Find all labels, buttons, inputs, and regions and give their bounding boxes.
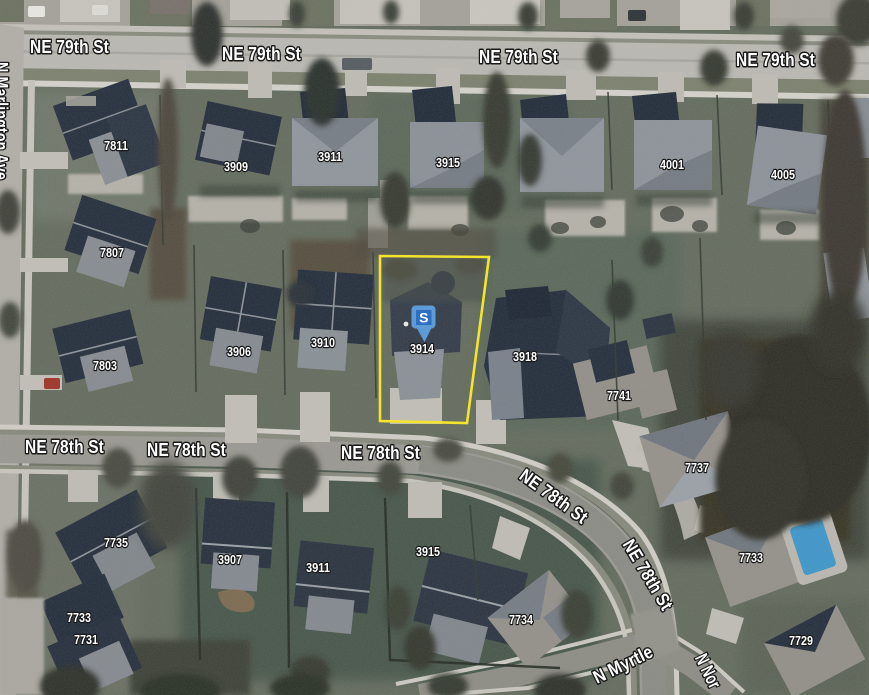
svg-text:3918: 3918 bbox=[513, 349, 537, 364]
svg-text:7735: 7735 bbox=[104, 535, 128, 550]
svg-text:NE 78th St: NE 78th St bbox=[25, 436, 104, 457]
svg-text:7731: 7731 bbox=[74, 632, 98, 647]
svg-text:7803: 7803 bbox=[93, 358, 117, 373]
svg-text:3911: 3911 bbox=[318, 149, 342, 164]
svg-text:7733: 7733 bbox=[67, 610, 91, 625]
svg-text:4005: 4005 bbox=[771, 167, 795, 182]
svg-text:3907: 3907 bbox=[218, 552, 242, 567]
svg-text:3909: 3909 bbox=[224, 159, 248, 174]
svg-text:3911: 3911 bbox=[306, 560, 330, 575]
svg-text:3915: 3915 bbox=[436, 155, 460, 170]
svg-text:3910: 3910 bbox=[311, 335, 335, 350]
svg-text:NE 78th St: NE 78th St bbox=[147, 439, 226, 460]
svg-text:7741: 7741 bbox=[607, 388, 631, 403]
svg-text:3914: 3914 bbox=[410, 341, 435, 356]
svg-text:NE 79th St: NE 79th St bbox=[30, 36, 109, 57]
svg-text:NE 79th St: NE 79th St bbox=[222, 43, 301, 64]
svg-text:7734: 7734 bbox=[509, 612, 534, 627]
svg-text:N Marlington Ave: N Marlington Ave bbox=[0, 62, 12, 180]
svg-text:4001: 4001 bbox=[660, 157, 684, 172]
svg-text:NE 78th St: NE 78th St bbox=[341, 442, 420, 463]
svg-text:7807: 7807 bbox=[100, 245, 124, 260]
svg-text:NE 79th St: NE 79th St bbox=[479, 46, 558, 67]
svg-text:7733: 7733 bbox=[739, 550, 763, 565]
svg-text:7737: 7737 bbox=[685, 460, 709, 475]
svg-text:3906: 3906 bbox=[227, 344, 251, 359]
svg-text:S: S bbox=[419, 310, 428, 326]
svg-text:7811: 7811 bbox=[104, 138, 128, 153]
svg-text:7729: 7729 bbox=[789, 633, 813, 648]
svg-text:3915: 3915 bbox=[416, 544, 440, 559]
svg-text:NE 79th St: NE 79th St bbox=[736, 49, 815, 70]
